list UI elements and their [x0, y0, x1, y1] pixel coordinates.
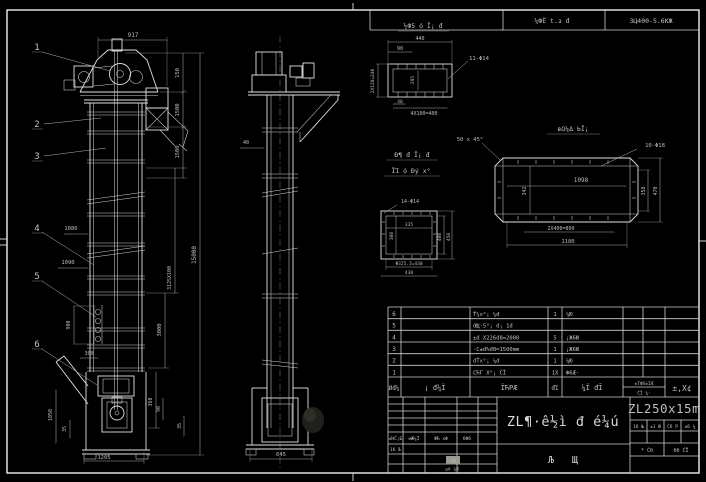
chamfer-note: 50 x 45° — [457, 137, 484, 143]
titleblock-left-cell: ФЋ xФ — [434, 436, 448, 442]
dim-label: 300 — [84, 351, 93, 357]
bom-name: ·C±đ%đ8=1500mm — [473, 347, 520, 353]
bom-qty: 5 — [553, 335, 556, 341]
titleblock-left-cell: 1б Љ — [390, 446, 401, 453]
bom-material: Ф6Æ· — [566, 370, 579, 376]
cad-canvas[interactable]: ¼ФЁ t.з đ 3Ц400-5.6КЖ — [0, 0, 706, 482]
dim-label: 400 — [437, 233, 443, 241]
dim-label: 15000 — [191, 246, 198, 264]
bom-header-qty: đΊ — [551, 384, 559, 392]
bom-name: СЋГ X°¡ ĆΪ — [473, 369, 506, 376]
dim-label: 2X120=240 — [370, 69, 376, 94]
bom-qty: 1X — [552, 370, 559, 376]
titleblock-right-cell: 1б № — [633, 423, 644, 430]
dim-label: 300 — [389, 232, 395, 240]
callout-label: 2 — [34, 120, 39, 130]
callout-label: 6 — [34, 340, 39, 350]
dim-label: 1086 — [64, 226, 77, 232]
bom-header-material: ¼Ϊ đĪ — [581, 383, 602, 392]
dim-label: 450 — [446, 233, 452, 241]
bom-seq: 2 — [392, 358, 396, 365]
dim-label: 150 — [175, 68, 181, 78]
dim-label: 295 — [410, 76, 416, 84]
dim-label: 335 — [405, 222, 413, 228]
bom-material: ¡Ж6Ю — [566, 335, 580, 341]
bom-header-name: ΪЋРÆ — [501, 383, 519, 392]
bom-name: Ť¼x°¡ ¼đ — [473, 310, 500, 318]
bom-header-seq: Øđ¼ — [389, 385, 400, 392]
detail-title: Đ¶ đ Ī¡ đ — [394, 150, 429, 159]
dim-label: 35 — [177, 423, 183, 429]
bom-material: ¼Ю — [566, 359, 573, 365]
bom-seq: 4 — [392, 334, 396, 341]
front-view-callouts — [32, 52, 110, 385]
dim-label: 1050 — [48, 409, 54, 421]
callout-label: 4 — [34, 224, 39, 234]
bom-header-code: ¡ đ¼Ϊ — [424, 383, 445, 392]
dim-label: 440 — [415, 36, 424, 42]
dim-label: 4X100=400 — [410, 111, 437, 117]
titleblock-right-cell: * Ćб — [641, 447, 653, 454]
dim-label: 11-Φ14 — [469, 56, 490, 62]
dim-label: 90 — [156, 406, 162, 412]
bom-header-remark: ±,X¢ — [672, 384, 691, 393]
bom-qty: 1 — [553, 359, 556, 365]
titleblock-left-bottom: џõ ¼đ — [445, 467, 459, 473]
dim-label: 90 — [397, 46, 403, 52]
dim-label: 917 — [128, 32, 139, 39]
dim-label: 1098 — [574, 177, 589, 184]
model-number: ZL250x15m — [628, 401, 700, 416]
titleblock-right-cell: ±б ¼ — [685, 423, 696, 430]
detail-title: ĪΊ ó Đý x° — [391, 166, 430, 175]
callout-label: 1 — [34, 43, 39, 53]
dim-label: 2X400=800 — [547, 226, 574, 232]
callout-label: 5 — [34, 272, 39, 282]
front-view — [56, 39, 188, 459]
dim-label: 430 — [405, 270, 413, 276]
bom-qty: 1 — [553, 347, 556, 353]
titleblock-right-cell: Ćб Р — [667, 423, 678, 430]
bom-seq: 3 — [392, 346, 396, 353]
drawing-sheet: ¼ФЁ t.з đ 3Ц400-5.6КЖ — [0, 0, 706, 482]
bom-seq: 6 — [392, 311, 396, 318]
detail-title: вΩ¼Δ ЬĪ¡ — [557, 124, 588, 133]
titleblock-left-cell: ±ΉĆ¡Б — [389, 435, 403, 442]
dim-label: 900 — [66, 320, 72, 329]
side-view — [240, 36, 340, 468]
titleblock-left-cell: бФб — [463, 435, 471, 442]
detail-top-flange — [376, 31, 468, 108]
drawing-title: ZL¶·ê½ì đ é¼ú — [507, 414, 619, 430]
dim-label: Φ325.3=430 — [395, 261, 422, 267]
dim-label: 14-Φ14 — [401, 199, 419, 205]
bom-name: đŤx°¡ ¼đ — [473, 357, 500, 365]
dim-label: 40 — [243, 140, 249, 146]
dim-label: 360 — [148, 397, 154, 406]
highlighted-cell-label: Ćб — [450, 458, 456, 465]
bom-name: ±đ X226đ8=2000 — [473, 335, 519, 341]
front-view-dimensions — [56, 37, 204, 464]
dim-label: 1205 — [97, 455, 110, 461]
detail-square-flange — [381, 160, 455, 276]
drawing-subtitle: Љ Щ — [547, 455, 584, 466]
dim-label: 10-Φ18 — [645, 143, 665, 149]
dim-label: 1500 — [175, 103, 181, 116]
bom-name: đЩ·5°¡ đ¡ 1đ — [473, 324, 513, 330]
dim-label: 35 — [62, 426, 68, 432]
drawing-frame — [0, 3, 706, 481]
bom-material: ¼Ю — [566, 312, 573, 318]
detail-title: ½Ф5 ó Ī¡ đ — [403, 21, 442, 30]
strip-cell2: 3Ц400-5.6КЖ — [629, 17, 672, 25]
dim-label: 342 — [522, 186, 528, 195]
dim-label: 3000 — [157, 323, 163, 336]
callout-label: 3 — [34, 152, 39, 162]
bom-header-weight: ±TФX±ΊÆ — [635, 380, 654, 387]
dim-label: 470 — [653, 186, 659, 195]
titleblock-right-cell: бб ĆΪ — [673, 447, 688, 454]
dim-label: 3125X100 — [167, 266, 173, 290]
bom-header-weight-total: ĆΪ ¼· — [637, 390, 651, 397]
titleblock-right-cell: ±1 Ю — [650, 424, 661, 430]
dim-label: 1090 — [61, 260, 74, 266]
bom-seq: 5 — [392, 323, 396, 330]
bom-qty: 1 — [553, 312, 556, 318]
bom-material: ¡Ж6Ю — [566, 347, 580, 353]
dim-label: 1180 — [561, 239, 574, 245]
dim-label: 358 — [641, 186, 647, 195]
screen-artifact — [302, 407, 324, 433]
dim-label: 40 — [397, 99, 403, 105]
dim-label: 645 — [276, 452, 286, 458]
strip-cell1: ¼ФЁ t.з đ — [534, 16, 569, 25]
titleblock-left-cell: мЖ¼Ϊ — [409, 435, 420, 442]
dim-label: 1500 — [175, 145, 181, 158]
bom-seq: 1 — [392, 369, 396, 376]
